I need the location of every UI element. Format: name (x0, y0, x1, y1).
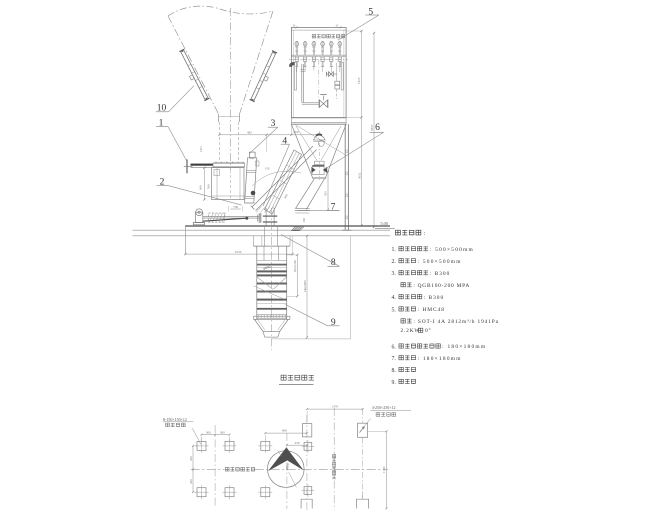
svg-text:430: 430 (295, 441, 300, 445)
svg-text:7: 7 (331, 203, 336, 213)
svg-text:8.: 8. (392, 368, 397, 374)
svg-text:600: 600 (199, 185, 203, 190)
svg-text:0°: 0° (425, 327, 431, 334)
svg-text:: SOT-I 4A 2812m³/h 1941Pa: : SOT-I 4A 2812m³/h 1941Pa (413, 319, 499, 325)
svg-text:380: 380 (302, 218, 306, 223)
svg-text:5.00: 5.00 (381, 221, 388, 226)
svg-text::: : (424, 231, 426, 237)
svg-text:2.2KW: 2.2KW (401, 328, 421, 334)
svg-text:400: 400 (283, 193, 289, 199)
svg-text:1.: 1. (392, 247, 397, 253)
svg-text:150: 150 (249, 156, 254, 160)
svg-text:4.: 4. (392, 295, 397, 301)
svg-text:1825: 1825 (357, 77, 361, 84)
svg-text:1370: 1370 (332, 405, 339, 409)
svg-text:: B300: : B300 (424, 295, 445, 301)
svg-text:1140: 1140 (382, 466, 386, 473)
svg-text:: HMC48: : HMC48 (417, 307, 445, 313)
svg-text:465: 465 (247, 130, 252, 134)
svg-text:430: 430 (189, 456, 193, 461)
svg-text:430: 430 (189, 479, 193, 484)
svg-text:4-250×250×12: 4-250×250×12 (372, 405, 396, 410)
svg-text:φ600: φ600 (263, 265, 271, 271)
svg-text:: QGB100-200 MPA: : QGB100-200 MPA (413, 283, 470, 289)
svg-text:3.: 3. (392, 271, 397, 277)
svg-text:: 180×180mm: : 180×180mm (442, 344, 486, 350)
svg-text:2.: 2. (392, 259, 397, 265)
svg-text:1251: 1251 (199, 146, 203, 153)
svg-text:9: 9 (331, 318, 336, 328)
svg-text:2250: 2250 (235, 250, 242, 254)
svg-text:: 180×180mm: : 180×180mm (417, 356, 461, 362)
svg-text:1: 1 (159, 119, 164, 129)
svg-text:9.: 9. (392, 380, 397, 386)
svg-text:565: 565 (324, 191, 328, 196)
svg-text:3032: 3032 (358, 172, 362, 179)
svg-text:5: 5 (368, 7, 373, 17)
svg-text:150: 150 (265, 167, 270, 171)
svg-text:500: 500 (207, 184, 211, 189)
svg-text:2: 2 (160, 178, 165, 188)
svg-text:3: 3 (271, 119, 276, 129)
svg-text:7.: 7. (392, 356, 397, 362)
svg-text:: 500×500mm: : 500×500mm (417, 259, 461, 265)
svg-text:700: 700 (233, 205, 238, 209)
svg-text:6.: 6. (392, 345, 397, 351)
svg-text:5.: 5. (392, 307, 397, 313)
svg-text:: 500×500mm: : 500×500mm (430, 247, 474, 253)
svg-text:: B300: : B300 (430, 271, 451, 277)
svg-text:Max3000: Max3000 (303, 280, 307, 292)
svg-text:5857: 5857 (370, 124, 374, 131)
svg-text:8-150×150×12: 8-150×150×12 (163, 417, 187, 422)
svg-text:900: 900 (282, 429, 287, 433)
svg-text:9(m)1200: 9(m)1200 (293, 260, 297, 272)
svg-text:4: 4 (282, 136, 287, 146)
svg-text:300: 300 (220, 430, 225, 434)
svg-text:6: 6 (375, 123, 380, 133)
svg-text:300: 300 (206, 430, 211, 434)
